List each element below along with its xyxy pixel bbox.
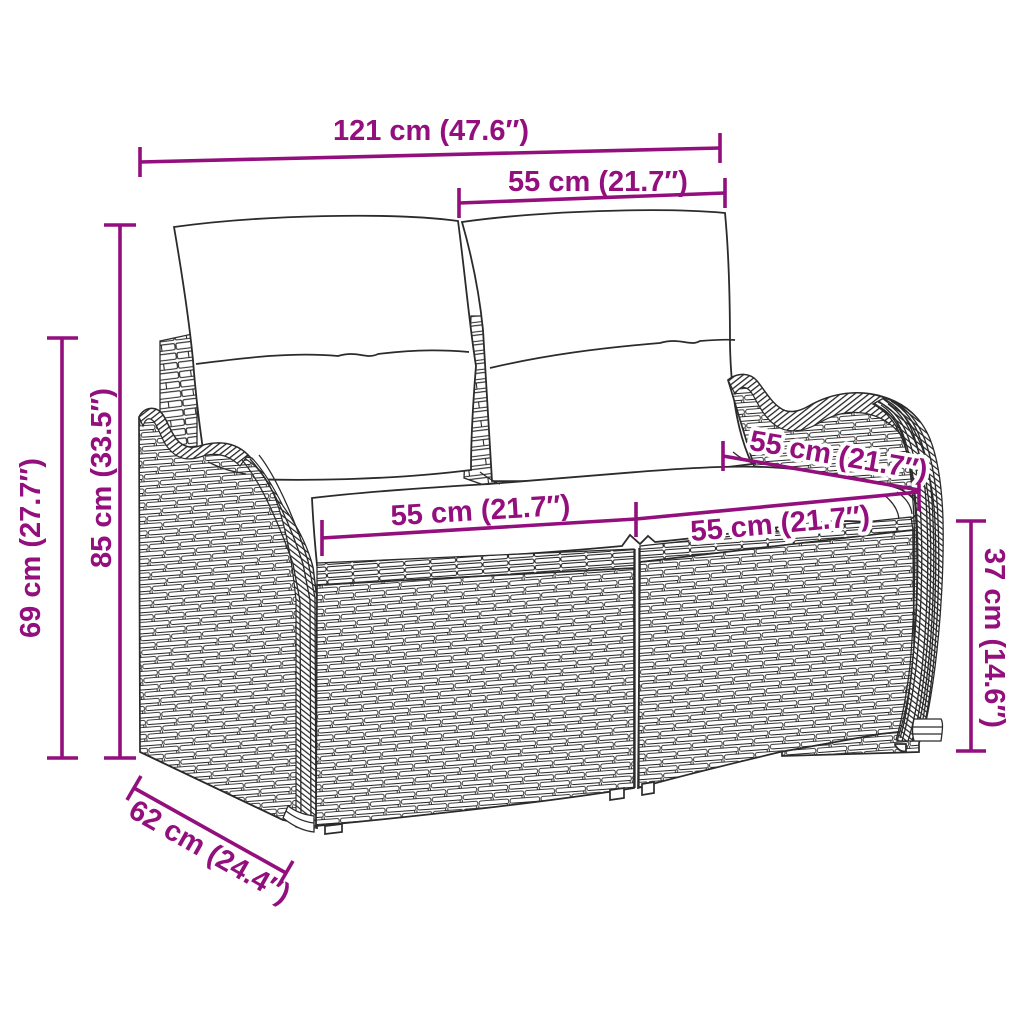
svg-text:37 cm (14.6″): 37 cm (14.6″): [978, 548, 1010, 728]
svg-text:121 cm (47.6″): 121 cm (47.6″): [333, 115, 529, 147]
svg-text:55 cm (21.7″): 55 cm (21.7″): [508, 166, 688, 198]
svg-text:69 cm (27.7″): 69 cm (27.7″): [15, 458, 47, 638]
svg-text:85 cm (33.5″): 85 cm (33.5″): [86, 388, 118, 568]
